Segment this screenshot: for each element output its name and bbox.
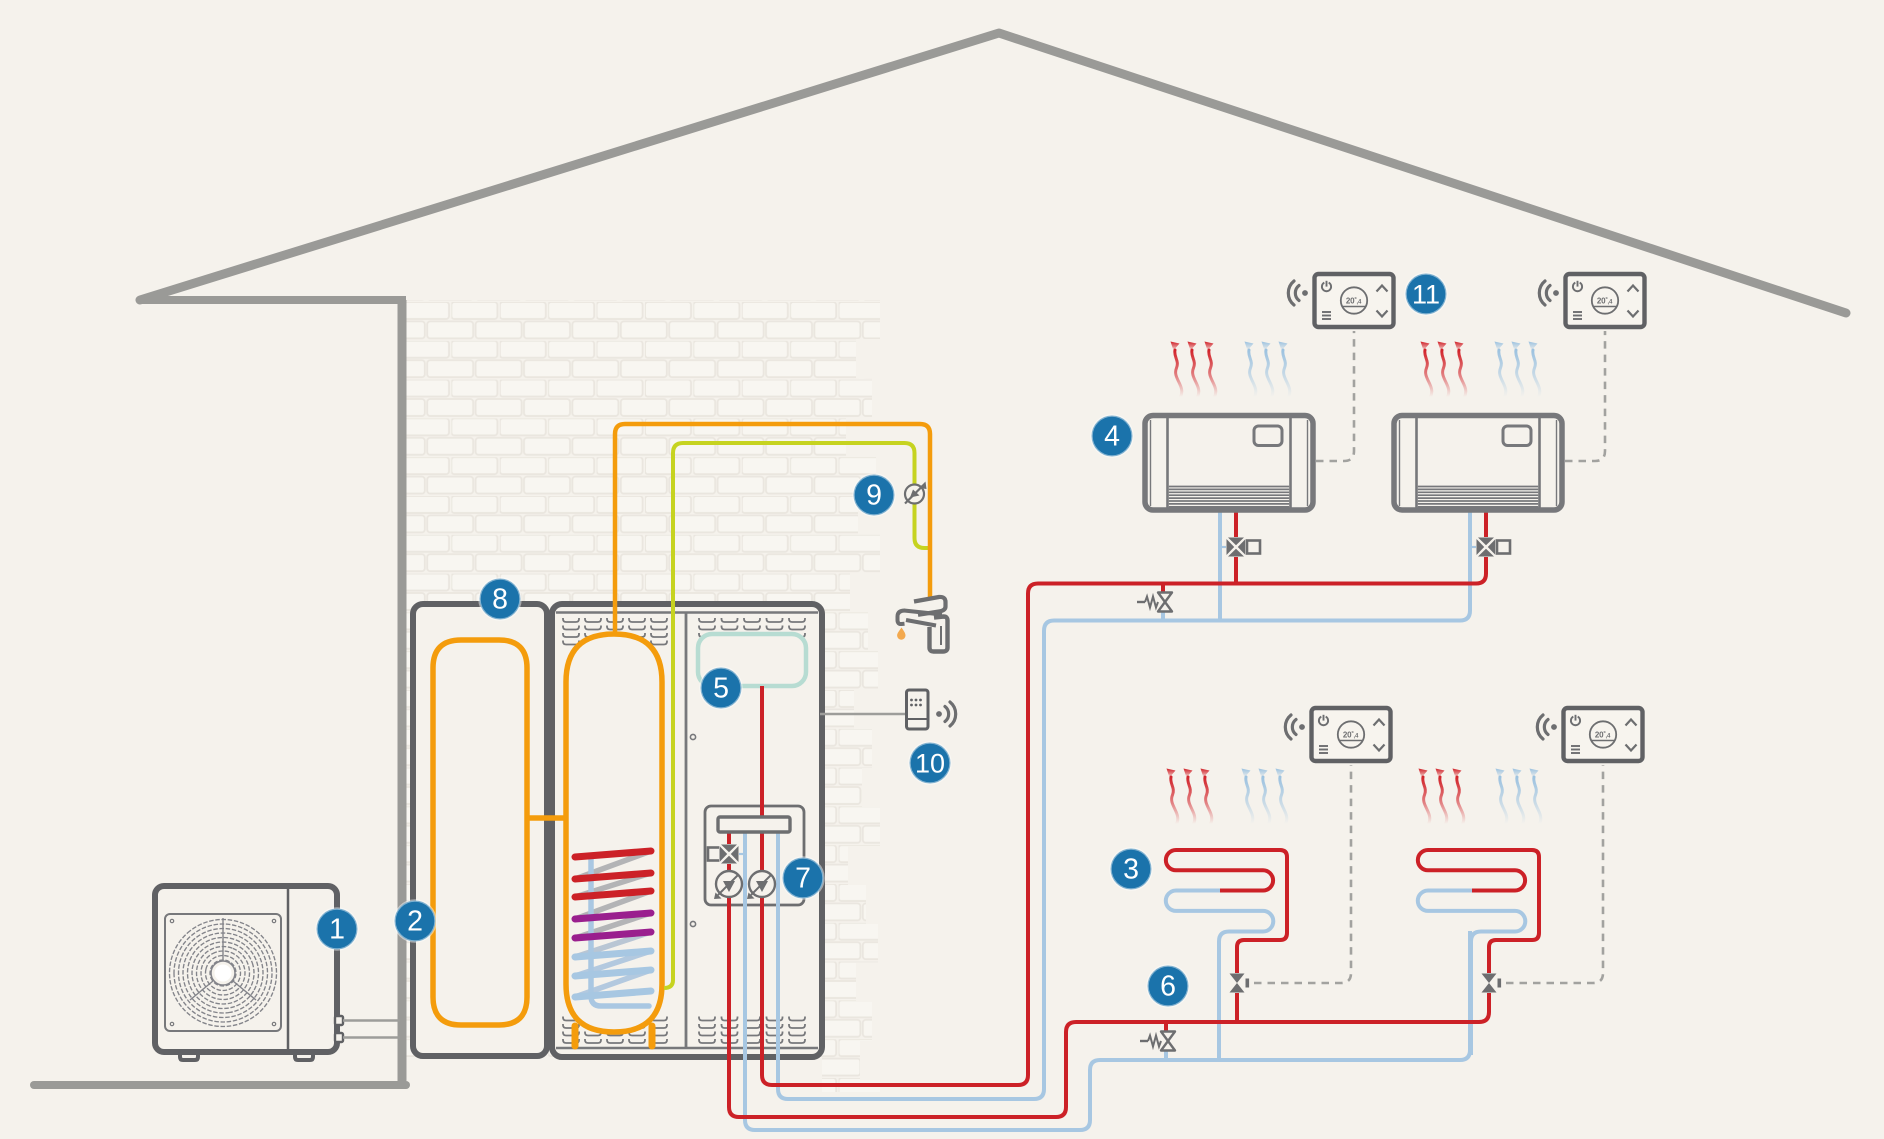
svg-text:10: 10	[915, 749, 945, 779]
svg-text:6: 6	[1160, 971, 1176, 1003]
svg-text:3: 3	[1123, 854, 1139, 886]
svg-text:8: 8	[492, 584, 508, 616]
svg-text:5: 5	[713, 673, 729, 705]
svg-text:1: 1	[329, 914, 345, 946]
svg-text:7: 7	[795, 863, 811, 895]
svg-text:11: 11	[1412, 280, 1440, 310]
svg-text:4: 4	[1104, 421, 1120, 453]
svg-text:9: 9	[866, 480, 882, 512]
svg-text:2: 2	[407, 906, 423, 938]
